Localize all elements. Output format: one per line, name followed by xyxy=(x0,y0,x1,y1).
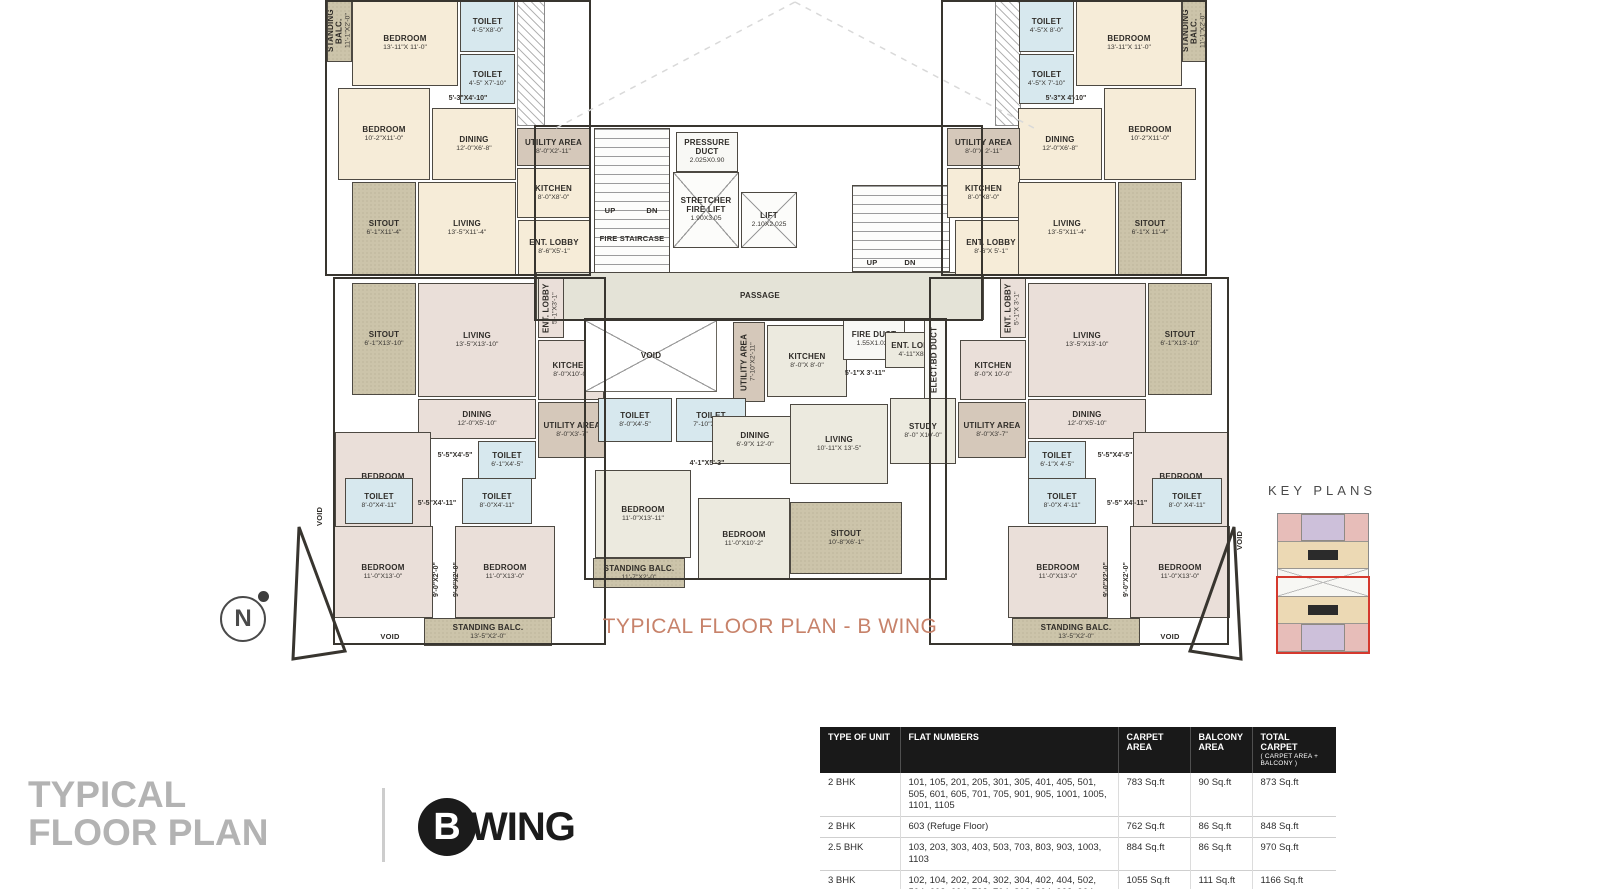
room-toilet: TOILET4'-5"X8'-0" xyxy=(460,0,515,52)
key-plan-bwing-highlight xyxy=(1276,576,1370,654)
room-sitout: SITOUT6'-1"X13'-10" xyxy=(1148,283,1212,395)
room-pressure-duct: PRESSURE DUCT2.025X0.90 xyxy=(676,132,738,172)
room-bedroom: BEDROOM11'-0"X10'-2" xyxy=(698,498,790,580)
table-cell: 783 Sq.ft xyxy=(1118,773,1190,817)
room-ent-lobby: ENT. LOBBY8'-6"X5'-1" xyxy=(518,220,590,275)
table-row: 2 BHK101, 105, 201, 205, 301, 305, 401, … xyxy=(820,773,1336,817)
north-dot-icon xyxy=(258,591,269,602)
table-cell: 1055 Sq.ft xyxy=(1118,870,1190,889)
table-cell: 3 BHK xyxy=(820,870,900,889)
key-plan-core xyxy=(1308,550,1338,560)
table-header-balcony-area: BALCONY AREA xyxy=(1190,727,1252,773)
room-elect-bd-duct: ELECT.BD DUCT xyxy=(924,320,946,400)
room-standing-balc: STANDING BALC.11'-1"X2'-0" xyxy=(1182,0,1207,62)
room-lift: LIFT2.10X2.025 xyxy=(741,192,797,248)
table-cell: 970 Sq.ft xyxy=(1252,838,1336,871)
room-toilet: TOILET8'-0"X 4'-11" xyxy=(1028,478,1096,524)
wing-logo-word: WING xyxy=(470,805,575,850)
plan-label: 9'-0"X2'-0" xyxy=(1118,545,1136,615)
table-cell: 86 Sq.ft xyxy=(1190,817,1252,838)
table-header-total-carpet: TOTAL CARPET( CARPET AREA + BALCONY ) xyxy=(1252,727,1336,773)
table-cell: 86 Sq.ft xyxy=(1190,838,1252,871)
room-utility-area: UTILITY AREA8'-0"X 2'-11" xyxy=(947,128,1020,166)
room-sitout: SITOUT6'-1"X13'-10" xyxy=(352,283,416,395)
room-study: STUDY8'-0" X10'-0" xyxy=(890,398,956,464)
room-dining: DINING12'-0"X5'-10" xyxy=(418,399,536,439)
table-cell: 884 Sq.ft xyxy=(1118,838,1190,871)
room-stretcher-fire-lift: STRETCHER FIRE LIFT1.90X3.05 xyxy=(673,172,739,248)
table-header-type-of-unit: TYPE OF UNIT xyxy=(820,727,900,773)
table-cell: 603 (Refuge Floor) xyxy=(900,817,1118,838)
plan-label: 4'-1"X5'-3" xyxy=(676,458,738,470)
room-toilet: TOILET6'-1"X4'-5" xyxy=(478,441,536,479)
room-living: LIVING13'-5"X13'-10" xyxy=(1028,283,1146,397)
table-header-carpet-area: CARPET AREA xyxy=(1118,727,1190,773)
room-utility-area: UTILITY AREA8'-0"X3'-7" xyxy=(958,402,1026,458)
table-cell: 2 BHK xyxy=(820,817,900,838)
room-ent-lobby: ENT. LOBBY5'-1"X3'-1" xyxy=(538,278,564,338)
page: STANDING BALC.11'-1"X2'-0"BEDROOM13'-11"… xyxy=(0,0,1600,889)
page-title: TYPICAL FLOOR PLAN xyxy=(28,776,268,853)
table-cell: 2.5 BHK xyxy=(820,838,900,871)
key-plan-band xyxy=(1278,542,1368,570)
plan-label: VOID xyxy=(312,490,328,542)
plan-label: FIRE STAIRCASE xyxy=(588,226,676,252)
plan-label: UP xyxy=(598,206,622,216)
room-bedroom: BEDROOM11'-0"X13'-0" xyxy=(333,526,433,618)
table-cell: 111 Sq.ft xyxy=(1190,870,1252,889)
room-bedroom: BEDROOM11'-0"X13'-0" xyxy=(1008,526,1108,618)
plan-label: 5'-3"X4'-10" xyxy=(432,92,504,106)
table-row: 3 BHK102, 104, 202, 204, 302, 304, 402, … xyxy=(820,870,1336,889)
table-cell: 103, 203, 303, 403, 503, 703, 803, 903, … xyxy=(900,838,1118,871)
room-bedroom: BEDROOM11'-0"X13'-0" xyxy=(1130,526,1230,618)
plan-label: UP xyxy=(860,258,884,269)
plan-label: 9'-0"X2'-0" xyxy=(1098,545,1116,615)
plan-label: DN xyxy=(898,258,922,269)
plan-label: 5'-5"X4'-5" xyxy=(1088,450,1142,462)
key-plan-center-unit xyxy=(1301,514,1345,541)
wing-logo: B WING xyxy=(418,798,575,856)
room-kitchen: KITCHEN8'-0"X8'-0" xyxy=(947,168,1020,218)
room-toilet: TOILET8'-0"X4'-11" xyxy=(462,478,532,524)
north-arrow: N xyxy=(220,596,266,642)
plan-label: 5'-3"X 4'-10" xyxy=(1030,92,1102,106)
room-dining: DINING12'-0"X5'-10" xyxy=(1028,399,1146,439)
room-bedroom: BEDROOM10'-2"X11'-0" xyxy=(1104,88,1196,180)
page-title-line1: TYPICAL xyxy=(28,776,268,814)
room-void: VOID xyxy=(585,320,717,392)
table-cell: 101, 105, 201, 205, 301, 305, 401, 405, … xyxy=(900,773,1118,817)
wing-logo-letter: B xyxy=(418,798,476,856)
table-cell: 102, 104, 202, 204, 302, 304, 402, 404, … xyxy=(900,870,1118,889)
page-title-line2: FLOOR PLAN xyxy=(28,814,268,852)
room-hatch xyxy=(517,0,545,126)
plan-caption: TYPICAL FLOOR PLAN - B WING xyxy=(530,615,1010,639)
room-bedroom: BEDROOM10'-2"X11'-0" xyxy=(338,88,430,180)
north-letter: N xyxy=(220,596,266,642)
plan-label: 5'-5" X4'-11" xyxy=(1098,498,1156,510)
room-living: LIVING13'-5"X11'-4" xyxy=(1018,182,1116,275)
table-cell: 90 Sq.ft xyxy=(1190,773,1252,817)
room-kitchen: KITCHEN8'-0"X 10'-0" xyxy=(960,340,1026,400)
room-ent-lobby: ENT. LOBBY8'-6"X 5'-1" xyxy=(955,220,1027,275)
table-head: TYPE OF UNITFLAT NUMBERSCARPET AREABALCO… xyxy=(820,727,1336,773)
plan-label: VOID xyxy=(350,630,430,644)
room-toilet: TOILET8'-0"X4'-5" xyxy=(598,398,672,442)
room-dining: DINING12'-0"X6'-8" xyxy=(1018,108,1102,180)
key-plan-wing-top xyxy=(1278,514,1368,542)
room-dining: DINING12'-0"X6'-8" xyxy=(432,108,516,180)
room-toilet: TOILET8'-0" X4'-11" xyxy=(1152,478,1222,524)
room-utility-area: UTILITY AREA8'-0"X3'-7" xyxy=(538,402,606,458)
room-utility-area: UTILITY AREA7'-10"X2'-11" xyxy=(733,322,765,402)
plan-label: 5'-1"X 3'-11" xyxy=(832,368,898,380)
floor-plan: STANDING BALC.11'-1"X2'-0"BEDROOM13'-11"… xyxy=(0,0,1600,889)
room-kitchen: KITCHEN8'-0"X 8'-0" xyxy=(767,325,847,397)
table-cell: 873 Sq.ft xyxy=(1252,773,1336,817)
flat-area-table: TYPE OF UNITFLAT NUMBERSCARPET AREABALCO… xyxy=(820,727,1336,889)
room-bedroom: BEDROOM13'-11"X 11'-0" xyxy=(1076,0,1182,86)
room-bedroom: BEDROOM11'-0"X13'-0" xyxy=(455,526,555,618)
plan-label: 9'-0"X2'-0" xyxy=(428,545,446,615)
table-cell: 762 Sq.ft xyxy=(1118,817,1190,838)
room-sitout: SITOUT6'-1"X11'-4" xyxy=(352,182,416,275)
room-passage: PASSAGE xyxy=(536,272,984,320)
room-dining: DINING6'-9"X 12'-0" xyxy=(712,416,798,464)
plan-label: VOID xyxy=(1130,630,1210,644)
table-cell: 848 Sq.ft xyxy=(1252,817,1336,838)
room-sitout: SITOUT6'-1"X 11'-4" xyxy=(1118,182,1182,275)
room-toilet: TOILET6'-1"X 4'-5" xyxy=(1028,441,1086,479)
room-kitchen: KITCHEN8'-0"X8'-0" xyxy=(517,168,590,218)
room-living: LIVING13'-5"X13'-10" xyxy=(418,283,536,397)
room-ent-lobby: ENT. LOBBY5'-1"X 3'-1" xyxy=(1000,278,1026,338)
plan-label: 9'-0"X2'-0" xyxy=(448,545,466,615)
plan-label: VOID xyxy=(1232,514,1248,566)
table-cell: 1166 Sq.ft xyxy=(1252,870,1336,889)
table-body: 2 BHK101, 105, 201, 205, 301, 305, 401, … xyxy=(820,773,1336,889)
room-utility-area: UTILITY AREA8'-0"X2'-11" xyxy=(517,128,590,166)
room-sitout: SITOUT10'-8"X6'-1" xyxy=(790,502,902,574)
room-bedroom: BEDROOM13'-11"X 11'-0" xyxy=(352,0,458,86)
table-row: 2 BHK603 (Refuge Floor)762 Sq.ft86 Sq.ft… xyxy=(820,817,1336,838)
plan-label: 5'-5"X4'-11" xyxy=(408,498,466,510)
key-plan-thumbnail xyxy=(1277,513,1369,653)
room-toilet: TOILET4'-5"X 8'-0" xyxy=(1019,0,1074,52)
key-plans-title: KEY PLANS xyxy=(1252,483,1392,498)
room-toilet: TOILET8'-0"X4'-11" xyxy=(345,478,413,524)
footer-divider xyxy=(382,788,385,862)
room-living: LIVING13'-5"X11'-4" xyxy=(418,182,516,275)
room-standing-balc: STANDING BALC.11'-7"X2'-0" xyxy=(593,558,685,588)
table-row: 2.5 BHK103, 203, 303, 403, 503, 703, 803… xyxy=(820,838,1336,871)
room-standing-balc: STANDING BALC.11'-1"X2'-0" xyxy=(327,0,352,62)
table-cell: 2 BHK xyxy=(820,773,900,817)
table-header-flat-numbers: FLAT NUMBERS xyxy=(900,727,1118,773)
room-standing-balc: STANDING BALC.13'-5"X2'-0" xyxy=(1012,618,1140,646)
plan-label: 5'-5"X4'-5" xyxy=(428,450,482,462)
room-living: LIVING10'-11"X 13'-5" xyxy=(790,404,888,484)
plan-label: DN xyxy=(640,206,664,216)
room-bedroom: BEDROOM11'-0"X13'-11" xyxy=(595,470,691,558)
